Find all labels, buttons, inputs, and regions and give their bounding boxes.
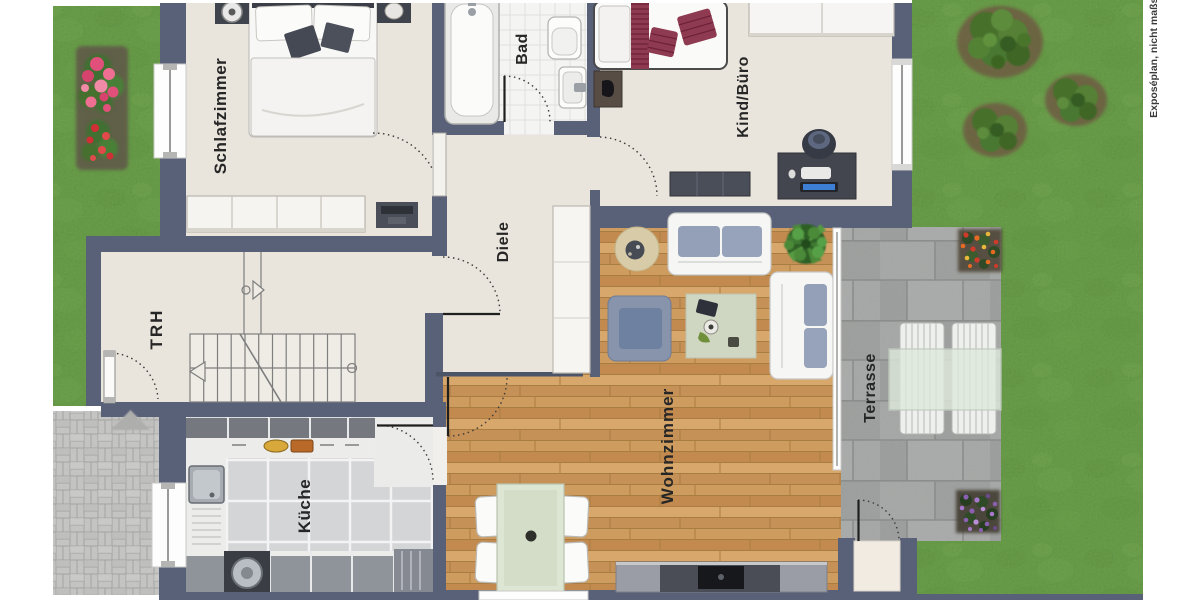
svg-text:Küche: Küche — [295, 479, 314, 533]
svg-text:TRH: TRH — [147, 309, 166, 350]
svg-text:Terrasse: Terrasse — [862, 353, 879, 423]
svg-text:Schlafzimmer: Schlafzimmer — [211, 58, 230, 175]
svg-text:Wohnzimmer: Wohnzimmer — [658, 388, 677, 504]
svg-text:Diele: Diele — [495, 222, 512, 263]
svg-text:Bad: Bad — [514, 33, 531, 65]
svg-text:Kind/Büro: Kind/Büro — [735, 56, 752, 138]
svg-text:Exposéplan, nicht maßst: Exposéplan, nicht maßst — [1148, 0, 1160, 118]
